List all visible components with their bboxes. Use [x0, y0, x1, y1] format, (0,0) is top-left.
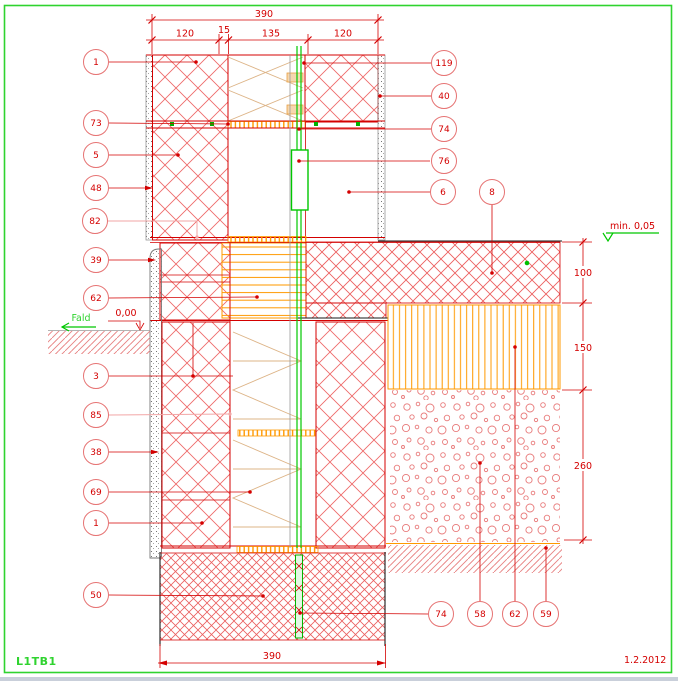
dim-top-total: 390	[255, 9, 273, 20]
floor-slab-edge	[306, 303, 386, 318]
toothed-batten-band-mid	[238, 430, 315, 436]
earth-hatch-left	[48, 331, 150, 354]
svg-text:76: 76	[438, 157, 450, 167]
exterior-render-strip-left	[146, 55, 153, 240]
slab-green-dot	[525, 261, 530, 266]
svg-text:3: 3	[93, 372, 99, 382]
svg-text:85: 85	[90, 411, 101, 421]
zero-level-text: 0,00	[115, 308, 136, 319]
dim-right-seg-1: 100	[574, 268, 592, 279]
deck-insulation-boards	[222, 243, 306, 318]
dim-right-seg-3: 260	[574, 461, 592, 472]
svg-text:6: 6	[440, 188, 446, 198]
outer-masonry-leaf-top	[153, 55, 229, 240]
svg-text:50: 50	[90, 591, 102, 601]
exterior-ground-left	[48, 331, 150, 355]
slope-text: Fald	[71, 313, 90, 324]
toothed-batten-band-deck	[228, 237, 306, 243]
svg-text:58: 58	[474, 610, 486, 620]
svg-text:62: 62	[509, 610, 520, 620]
dim-top-seg-3: 135	[262, 29, 280, 40]
outer-masonry-leaf-lower	[162, 322, 230, 548]
svg-text:74: 74	[438, 125, 450, 135]
dim-top-seg-4: 120	[334, 29, 352, 40]
svg-text:119: 119	[435, 59, 452, 69]
inner-masonry-leaf-top	[305, 55, 378, 122]
svg-text:40: 40	[438, 92, 450, 102]
min-level-text: min. 0,05	[610, 221, 655, 232]
dim-right-seg-2: 150	[574, 343, 592, 354]
floor-insulation-layer	[388, 305, 560, 389]
svg-text:1: 1	[93, 519, 99, 529]
svg-text:8: 8	[489, 188, 495, 198]
svg-text:74: 74	[435, 610, 447, 620]
drawing-date: 1.2.2012	[624, 655, 666, 666]
toothed-batten-band-foundation	[237, 547, 318, 553]
dim-top-seg-1: 120	[176, 29, 194, 40]
svg-text:39: 39	[90, 256, 102, 266]
plinth-render-curb	[150, 249, 162, 558]
svg-text:1: 1	[93, 58, 99, 68]
svg-text:62: 62	[90, 294, 101, 304]
gravel-capillary-layer	[390, 390, 560, 542]
toothed-batten-band-top	[228, 122, 305, 129]
svg-text:59: 59	[540, 610, 552, 620]
earth-hatch-right	[388, 545, 562, 573]
foundation-block	[160, 546, 386, 646]
green-frame-profile	[292, 150, 309, 210]
svg-text:82: 82	[89, 217, 100, 227]
floor-slab	[306, 242, 560, 303]
svg-text:38: 38	[90, 448, 102, 458]
foundation-hatch	[160, 554, 385, 641]
svg-text:73: 73	[90, 119, 101, 129]
foundation-drain-strip	[296, 555, 303, 638]
interior-render-strip	[378, 55, 385, 240]
drawing-canvas: 390 120 15 135 120 100 150 260 390 min. …	[0, 0, 678, 681]
construction-detail-drawing: 390 120 15 135 120 100 150 260 390 min. …	[0, 0, 678, 681]
window-bottom-edge	[0, 677, 678, 681]
deck-left-masonry	[160, 243, 230, 320]
ground-layers-right	[386, 305, 562, 573]
sheet-code: L1TB1	[16, 655, 57, 668]
dim-top-seg-2: 15	[218, 25, 230, 36]
svg-text:48: 48	[90, 184, 102, 194]
svg-text:69: 69	[90, 488, 102, 498]
dim-bottom-total: 390	[263, 651, 281, 662]
inner-masonry-leaf-lower	[316, 322, 385, 548]
svg-text:5: 5	[93, 151, 99, 161]
